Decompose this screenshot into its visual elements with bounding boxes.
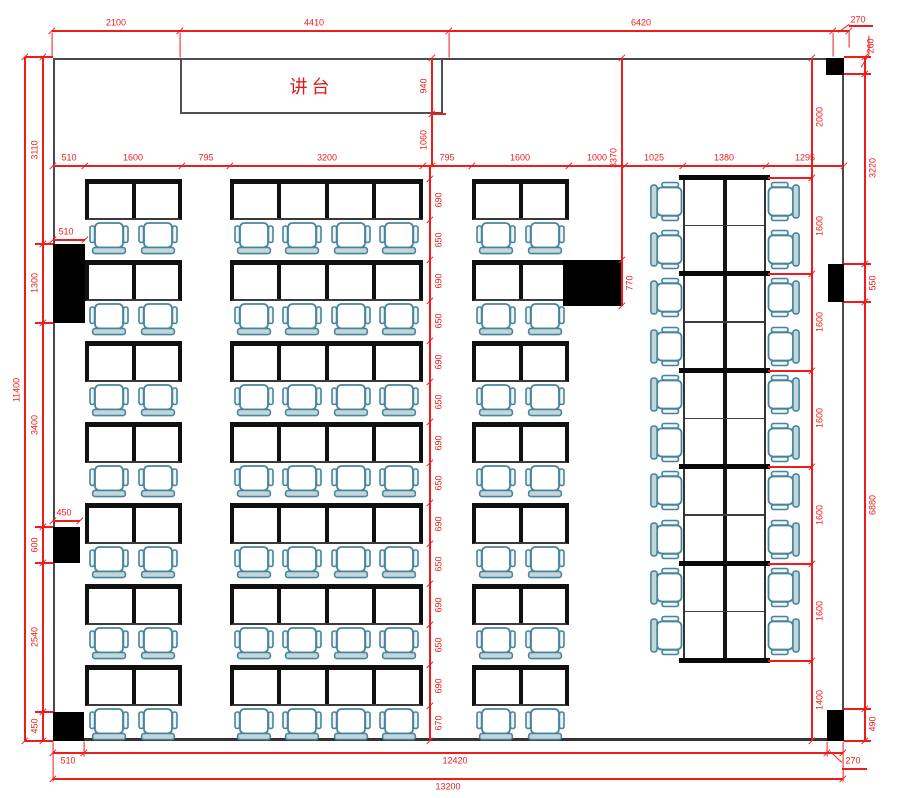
chair-glyph <box>282 465 322 498</box>
chair <box>476 708 516 741</box>
desk <box>372 589 419 623</box>
desk <box>234 184 277 218</box>
chair-glyph <box>331 222 371 255</box>
dimension-label: 1600 <box>816 216 825 236</box>
chair <box>768 278 801 318</box>
chair <box>476 465 516 498</box>
desk-group <box>230 503 423 544</box>
chair <box>476 222 516 255</box>
chair <box>379 222 419 255</box>
desk <box>234 346 277 380</box>
desk <box>277 589 324 623</box>
chair <box>476 546 516 579</box>
chair-glyph <box>331 627 371 660</box>
chair <box>282 708 322 741</box>
chair-glyph <box>138 303 178 336</box>
dimension-label: 3110 <box>31 140 40 159</box>
desk <box>325 265 372 299</box>
chair <box>525 384 565 417</box>
chair <box>331 303 371 336</box>
chair <box>138 303 178 336</box>
desk <box>277 184 324 218</box>
desk <box>519 670 566 704</box>
chair-glyph <box>525 708 565 741</box>
extension-line <box>868 36 869 55</box>
desk-group <box>85 422 182 463</box>
desk <box>234 427 277 461</box>
dimension-label: 2540 <box>31 627 40 647</box>
chair-glyph <box>768 423 801 463</box>
chair <box>650 568 683 608</box>
structural-column <box>53 527 80 563</box>
desk <box>132 508 179 542</box>
desk <box>325 589 372 623</box>
chair-glyph <box>768 568 801 608</box>
desk <box>234 265 277 299</box>
dimension-label: 550 <box>869 275 878 290</box>
chair <box>89 546 129 579</box>
chair-glyph <box>525 222 565 255</box>
dimension-label: 650 <box>435 475 444 490</box>
extension-line <box>844 263 871 264</box>
desk-group <box>85 179 182 220</box>
dimension-label: 650 <box>435 232 444 247</box>
dimension-line <box>53 778 843 779</box>
desk <box>89 589 132 623</box>
extension-line <box>844 708 871 709</box>
chair-glyph <box>768 181 801 221</box>
dimension-label: 1300 <box>31 273 40 293</box>
chair <box>234 384 274 417</box>
extension-line <box>768 660 812 661</box>
chair <box>650 519 683 559</box>
desk <box>277 670 324 704</box>
chair-glyph <box>282 627 322 660</box>
desk <box>372 346 419 380</box>
extension-line <box>25 56 53 57</box>
extension-line <box>768 370 812 371</box>
chair-glyph <box>138 546 178 579</box>
desk-group <box>85 584 182 625</box>
chair-glyph <box>379 627 419 660</box>
chair-glyph <box>234 627 274 660</box>
extension-line <box>35 243 53 244</box>
chair <box>525 303 565 336</box>
chair-glyph <box>525 303 565 336</box>
chair-glyph <box>331 465 371 498</box>
chair <box>331 708 371 741</box>
dimension-label: 1060 <box>420 130 429 150</box>
extension-line <box>849 25 873 26</box>
desk <box>476 508 519 542</box>
structural-column <box>828 264 844 302</box>
desk <box>132 265 179 299</box>
extension-line <box>35 526 53 527</box>
desk <box>277 265 324 299</box>
desk <box>372 265 419 299</box>
chair <box>476 384 516 417</box>
chair <box>282 465 322 498</box>
chair-glyph <box>650 181 683 221</box>
extension-line <box>52 742 53 782</box>
dimension-label: 690 <box>435 273 444 288</box>
desk <box>325 670 372 704</box>
chair <box>331 222 371 255</box>
extension-line <box>448 33 449 58</box>
dimension-line <box>53 165 844 166</box>
dimension-label: 6420 <box>631 19 651 28</box>
dimension-label: 1400 <box>816 690 825 710</box>
desk-group-separator <box>679 368 770 373</box>
chair-glyph <box>476 465 516 498</box>
dimension-label: 600 <box>31 537 40 552</box>
chair <box>89 384 129 417</box>
desk-group <box>230 584 423 625</box>
chair <box>89 465 129 498</box>
dimension-label: 270 <box>845 757 860 766</box>
dimension-line <box>621 58 622 306</box>
dimension-label: 1600 <box>123 154 143 163</box>
chair-glyph <box>282 708 322 741</box>
chair-glyph <box>89 384 129 417</box>
dimension-label: 4410 <box>304 19 324 28</box>
dimension-label: 770 <box>626 275 635 290</box>
chair-glyph <box>768 374 801 414</box>
desk <box>519 427 566 461</box>
desk <box>132 427 179 461</box>
chair <box>138 222 178 255</box>
chair-glyph <box>89 303 129 336</box>
desk-group <box>230 665 423 706</box>
chair <box>234 465 274 498</box>
chair-glyph <box>138 627 178 660</box>
desk <box>519 589 566 623</box>
chair <box>650 374 683 414</box>
chair-glyph <box>650 568 683 608</box>
desk-row-divider <box>685 225 764 227</box>
desk <box>372 184 419 218</box>
desk <box>89 508 132 542</box>
dimension-label: 690 <box>435 678 444 693</box>
chair-glyph <box>650 519 683 559</box>
chair <box>525 627 565 660</box>
structural-column <box>53 712 84 741</box>
chair-glyph <box>476 627 516 660</box>
dimension-label: 690 <box>435 516 444 531</box>
chair <box>768 423 801 463</box>
desk-group <box>472 665 569 706</box>
chair <box>476 627 516 660</box>
extension-line <box>842 742 843 782</box>
chair <box>138 546 178 579</box>
chair <box>379 627 419 660</box>
dimension-line <box>864 57 865 741</box>
chair-glyph <box>768 278 801 318</box>
chair-glyph <box>234 465 274 498</box>
desk <box>476 184 519 218</box>
dimension-line <box>429 166 430 741</box>
extension-line <box>844 73 871 74</box>
dimension-label: 11400 <box>13 378 22 402</box>
dimension-line <box>52 30 849 31</box>
desk-group <box>472 584 569 625</box>
desk <box>89 670 132 704</box>
chair <box>768 471 801 511</box>
chair <box>525 465 565 498</box>
chair-glyph <box>234 303 274 336</box>
desk-group <box>230 341 423 382</box>
dimension-label: 3220 <box>869 158 878 178</box>
dimension-label: 2100 <box>106 19 126 28</box>
dimension-label: 795 <box>198 154 213 163</box>
chair-glyph <box>476 303 516 336</box>
desk <box>372 670 419 704</box>
desk <box>372 427 419 461</box>
desk <box>277 427 324 461</box>
extension-line <box>844 740 871 741</box>
desk <box>325 427 372 461</box>
desk-group-separator <box>679 464 770 469</box>
chair <box>282 627 322 660</box>
desk <box>132 589 179 623</box>
dimension-label: 13200 <box>435 783 460 792</box>
dimension-label: 670 <box>435 715 444 730</box>
desk <box>132 670 179 704</box>
chair-glyph <box>650 471 683 511</box>
chair <box>650 326 683 366</box>
desk-group-separator <box>679 561 770 566</box>
chair <box>379 465 419 498</box>
desk <box>234 508 277 542</box>
chair <box>650 471 683 511</box>
chair <box>476 303 516 336</box>
desk <box>234 670 277 704</box>
desk <box>519 265 566 299</box>
chair <box>234 546 274 579</box>
chair-glyph <box>650 278 683 318</box>
dimension-label: 940 <box>420 78 429 93</box>
dimension-label: 3200 <box>317 154 337 163</box>
chair-glyph <box>331 303 371 336</box>
structural-column <box>827 710 844 741</box>
dimension-label: 1380 <box>714 154 734 163</box>
desk-row-divider <box>685 321 764 323</box>
dimension-label: 1600 <box>510 154 530 163</box>
extension-line <box>844 56 871 57</box>
chair <box>650 616 683 656</box>
structural-column <box>563 260 622 306</box>
dimension-label: 3370 <box>610 148 619 168</box>
chair-glyph <box>138 222 178 255</box>
chair-glyph <box>476 222 516 255</box>
dimension-label: 690 <box>435 597 444 612</box>
desk-group <box>472 422 569 463</box>
dimension-label: 1600 <box>816 312 825 332</box>
desk <box>89 184 132 218</box>
dimension-line <box>811 58 812 741</box>
chair <box>379 708 419 741</box>
chair-glyph <box>768 471 801 511</box>
extension-line <box>51 33 52 57</box>
dimension-label: 795 <box>439 154 454 163</box>
extension-line <box>35 322 53 323</box>
desk-row-divider <box>685 418 764 420</box>
dimension-line <box>53 239 85 240</box>
desk <box>372 508 419 542</box>
desk-group <box>230 179 423 220</box>
dimension-label: 1025 <box>644 154 664 163</box>
chair <box>89 627 129 660</box>
chair <box>768 616 801 656</box>
chair-glyph <box>282 384 322 417</box>
chair <box>282 384 322 417</box>
chair <box>282 222 322 255</box>
chair-glyph <box>650 616 683 656</box>
chair <box>282 546 322 579</box>
desk <box>519 184 566 218</box>
dimension-label: 270 <box>850 16 865 25</box>
chair-glyph <box>89 465 129 498</box>
desk-group <box>472 341 569 382</box>
chair <box>525 546 565 579</box>
dimension-label: 1600 <box>816 601 825 621</box>
chair-glyph <box>650 423 683 463</box>
chair <box>650 181 683 221</box>
chair-glyph <box>476 384 516 417</box>
chair-glyph <box>476 546 516 579</box>
chair <box>768 181 801 221</box>
dimension-label: 650 <box>435 637 444 652</box>
desk-group <box>85 503 182 544</box>
chair-glyph <box>379 303 419 336</box>
chair-glyph <box>525 546 565 579</box>
chair <box>89 222 129 255</box>
chair-glyph <box>234 384 274 417</box>
chair <box>331 546 371 579</box>
chair <box>768 229 801 269</box>
chair-glyph <box>768 616 801 656</box>
desk <box>476 670 519 704</box>
chair-glyph <box>282 303 322 336</box>
extension-line <box>844 301 871 302</box>
chair <box>138 384 178 417</box>
chair-glyph <box>282 546 322 579</box>
chair <box>89 708 129 741</box>
chair <box>331 627 371 660</box>
extension-line <box>826 742 827 757</box>
chair-glyph <box>138 708 178 741</box>
chair-glyph <box>379 546 419 579</box>
chair-glyph <box>138 384 178 417</box>
chair <box>331 465 371 498</box>
desk-group <box>85 341 182 382</box>
desk <box>277 508 324 542</box>
chair <box>138 627 178 660</box>
chair <box>525 222 565 255</box>
dimension-line <box>24 57 25 741</box>
chair-glyph <box>768 326 801 366</box>
desk <box>89 265 132 299</box>
extension-line <box>35 562 53 563</box>
chair <box>282 303 322 336</box>
extension-line <box>179 33 180 58</box>
desk-group <box>472 260 569 301</box>
extension-line <box>35 711 53 712</box>
floor-plan: 讲台21004410642051016007953200795160010001… <box>0 0 900 798</box>
desk <box>476 346 519 380</box>
chair-glyph <box>379 384 419 417</box>
chair <box>379 546 419 579</box>
chair-glyph <box>525 384 565 417</box>
desk <box>325 508 372 542</box>
extension-line <box>432 113 446 114</box>
dimension-label: 690 <box>435 435 444 450</box>
dimension-label: 450 <box>31 718 40 733</box>
podium: 讲台 <box>180 58 443 114</box>
chair <box>234 222 274 255</box>
chair-glyph <box>89 627 129 660</box>
chair-glyph <box>331 708 371 741</box>
chair-glyph <box>650 374 683 414</box>
chair <box>89 303 129 336</box>
desk <box>234 589 277 623</box>
desk <box>277 346 324 380</box>
dimension-label: 1600 <box>816 408 825 428</box>
chair <box>768 519 801 559</box>
desk <box>325 346 372 380</box>
chair-glyph <box>89 546 129 579</box>
desk-group <box>472 503 569 544</box>
dimension-label: 510 <box>58 228 73 237</box>
desk <box>132 184 179 218</box>
chair <box>138 465 178 498</box>
desk <box>132 346 179 380</box>
chair <box>650 423 683 463</box>
dimension-label: 2000 <box>816 107 825 127</box>
extension-line <box>768 466 812 467</box>
chair-glyph <box>525 465 565 498</box>
desk <box>519 346 566 380</box>
podium-label: 讲台 <box>290 73 334 99</box>
chair <box>234 708 274 741</box>
chair <box>379 303 419 336</box>
dimension-label: 510 <box>60 757 75 766</box>
dimension-label: 1600 <box>816 505 825 525</box>
dimension-label: 650 <box>435 556 444 571</box>
dimension-line <box>53 752 843 753</box>
desk-group <box>230 260 423 301</box>
chair-glyph <box>768 229 801 269</box>
chair-glyph <box>525 627 565 660</box>
chair <box>768 568 801 608</box>
chair <box>234 303 274 336</box>
desk-group-separator <box>679 271 770 276</box>
desk-group-separator <box>679 175 770 180</box>
structural-column <box>826 58 844 75</box>
dimension-line <box>53 520 80 521</box>
chair <box>331 384 371 417</box>
dimension-label: 490 <box>869 716 878 731</box>
dimension-line <box>42 57 43 741</box>
chair-glyph <box>331 384 371 417</box>
chair-glyph <box>768 519 801 559</box>
desk-group <box>230 422 423 463</box>
dimension-label: 690 <box>435 192 444 207</box>
chair-glyph <box>234 222 274 255</box>
desk <box>476 427 519 461</box>
dimension-label: 6880 <box>869 495 878 515</box>
desk-row-divider <box>685 514 764 516</box>
